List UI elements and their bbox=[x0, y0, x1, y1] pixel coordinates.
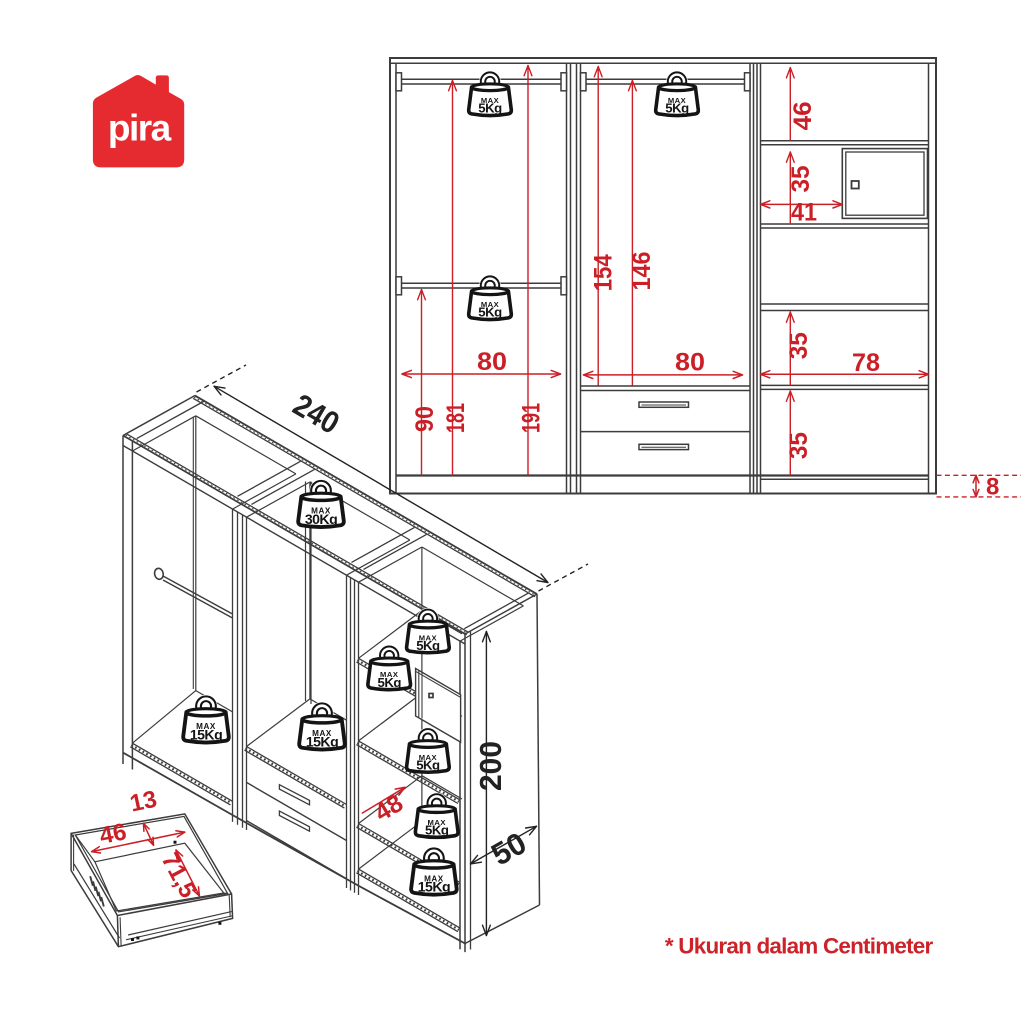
svg-text:* Ukuran dalam Centimeter: * Ukuran dalam Centimeter bbox=[665, 934, 934, 959]
svg-text:80: 80 bbox=[477, 348, 507, 376]
svg-text:30Kg: 30Kg bbox=[305, 511, 337, 527]
svg-text:5Kg: 5Kg bbox=[665, 101, 689, 116]
svg-text:15Kg: 15Kg bbox=[306, 734, 338, 750]
svg-text:8: 8 bbox=[986, 474, 999, 501]
svg-text:90: 90 bbox=[411, 406, 439, 432]
svg-text:146: 146 bbox=[628, 252, 656, 291]
svg-text:pira: pira bbox=[108, 108, 172, 149]
svg-text:5Kg: 5Kg bbox=[478, 305, 502, 320]
svg-text:5Kg: 5Kg bbox=[416, 757, 440, 772]
svg-text:15Kg: 15Kg bbox=[190, 727, 222, 743]
svg-text:200: 200 bbox=[473, 741, 508, 791]
svg-text:78: 78 bbox=[852, 349, 880, 377]
svg-text:191: 191 bbox=[518, 403, 546, 433]
svg-text:5Kg: 5Kg bbox=[425, 823, 449, 838]
svg-text:5Kg: 5Kg bbox=[416, 638, 440, 653]
svg-text:46: 46 bbox=[789, 101, 817, 130]
svg-text:240: 240 bbox=[287, 387, 345, 441]
svg-text:154: 154 bbox=[590, 254, 618, 291]
svg-text:5Kg: 5Kg bbox=[377, 675, 401, 690]
svg-text:13: 13 bbox=[128, 786, 160, 818]
svg-text:46: 46 bbox=[97, 818, 128, 850]
svg-text:181: 181 bbox=[442, 403, 470, 433]
svg-text:5Kg: 5Kg bbox=[478, 101, 502, 116]
svg-text:80: 80 bbox=[675, 349, 705, 377]
svg-text:35: 35 bbox=[785, 432, 813, 459]
svg-text:35: 35 bbox=[787, 165, 815, 192]
svg-text:35: 35 bbox=[785, 332, 813, 359]
svg-text:48: 48 bbox=[370, 789, 408, 827]
svg-text:41: 41 bbox=[791, 199, 817, 227]
svg-text:15Kg: 15Kg bbox=[418, 879, 450, 895]
